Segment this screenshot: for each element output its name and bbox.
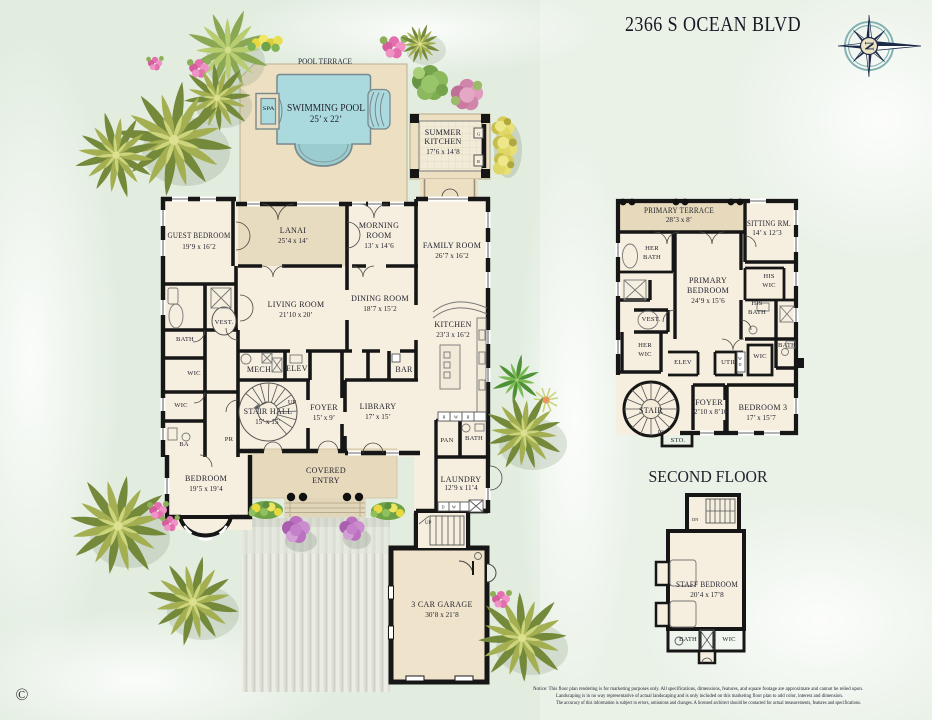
svg-text:30’8 x 21’8: 30’8 x 21’8 bbox=[425, 611, 459, 619]
svg-text:BATH: BATH bbox=[465, 435, 483, 442]
svg-text:BEDROOM: BEDROOM bbox=[185, 474, 227, 483]
svg-text:R: R bbox=[477, 159, 480, 164]
svg-text:B: B bbox=[467, 415, 470, 420]
svg-text:WIC: WIC bbox=[638, 351, 652, 358]
svg-text:13’ x 14’6: 13’ x 14’6 bbox=[364, 242, 394, 250]
svg-text:VEST.: VEST. bbox=[642, 316, 661, 323]
svg-text:DN: DN bbox=[658, 429, 665, 434]
svg-text:ENTRY: ENTRY bbox=[312, 476, 340, 485]
svg-text:D: D bbox=[441, 505, 444, 510]
svg-text:SITTING RM.: SITTING RM. bbox=[747, 219, 791, 228]
svg-text:The accuracy of this informati: The accuracy of this information is subj… bbox=[556, 699, 861, 706]
svg-text:18’7 x 15’2: 18’7 x 15’2 bbox=[363, 305, 397, 313]
svg-text:BAR: BAR bbox=[395, 365, 413, 374]
svg-text:23’3 x 16’2: 23’3 x 16’2 bbox=[436, 331, 470, 339]
svg-text:WIC: WIC bbox=[174, 402, 188, 409]
svg-text:LANAI: LANAI bbox=[280, 226, 306, 235]
svg-text:STO.: STO. bbox=[671, 437, 686, 444]
svg-text:HIS: HIS bbox=[751, 300, 762, 307]
svg-text:ROOM: ROOM bbox=[366, 231, 391, 240]
svg-text:25’4 x 14’: 25’4 x 14’ bbox=[278, 237, 308, 245]
svg-text:FOYER: FOYER bbox=[310, 403, 338, 412]
svg-text:UP: UP bbox=[425, 521, 432, 526]
svg-text:Landscaping is in no way repre: Landscaping is in no way representative … bbox=[556, 692, 844, 699]
svg-text:BATH: BATH bbox=[643, 254, 661, 261]
svg-text:BA: BA bbox=[179, 441, 189, 448]
svg-text:SWIMMING POOL: SWIMMING POOL bbox=[287, 102, 365, 114]
svg-text:MORNING: MORNING bbox=[359, 221, 399, 230]
svg-text:ELEV: ELEV bbox=[286, 364, 308, 373]
svg-text:W: W bbox=[452, 505, 456, 510]
svg-text:26’7 x 16’2: 26’7 x 16’2 bbox=[435, 252, 469, 260]
svg-text:ELEV: ELEV bbox=[674, 359, 692, 366]
svg-text:Notice: This floor plan rende: Notice: This floor plan rendering is for… bbox=[533, 685, 864, 692]
svg-text:MECH: MECH bbox=[247, 365, 271, 374]
svg-text:UTIL: UTIL bbox=[721, 359, 737, 366]
svg-text:BATH: BATH bbox=[176, 336, 194, 343]
svg-text:HER: HER bbox=[645, 245, 659, 252]
svg-text:LIBRARY: LIBRARY bbox=[360, 402, 397, 411]
svg-text:BEDROOM: BEDROOM bbox=[687, 286, 729, 295]
svg-text:B: B bbox=[443, 415, 446, 420]
svg-text:WIC: WIC bbox=[187, 370, 201, 377]
svg-text:N: N bbox=[862, 41, 876, 50]
svg-text:25’ x 22’: 25’ x 22’ bbox=[310, 114, 342, 124]
svg-text:19’5 x 19’4: 19’5 x 19’4 bbox=[189, 485, 223, 493]
svg-text:FOYER: FOYER bbox=[695, 398, 723, 407]
svg-text:COVERED: COVERED bbox=[306, 466, 346, 475]
svg-text:VEST.: VEST. bbox=[215, 319, 234, 326]
svg-text:W: W bbox=[454, 415, 458, 420]
svg-text:21’10 x 20’: 21’10 x 20’ bbox=[279, 311, 313, 319]
svg-text:2366 S OCEAN BLVD: 2366 S OCEAN BLVD bbox=[625, 12, 801, 36]
svg-text:WIC: WIC bbox=[762, 282, 776, 289]
svg-text:BATH: BATH bbox=[778, 342, 796, 349]
svg-text:KITCHEN: KITCHEN bbox=[434, 320, 471, 329]
svg-text:12’9 x 11’4: 12’9 x 11’4 bbox=[444, 484, 478, 492]
svg-text:BATH: BATH bbox=[748, 309, 766, 316]
svg-text:15’ x 9’: 15’ x 9’ bbox=[313, 414, 335, 422]
svg-text:BEDROOM 3: BEDROOM 3 bbox=[739, 403, 788, 412]
svg-text:14’ x 12’3: 14’ x 12’3 bbox=[752, 229, 782, 237]
svg-text:15’ x 15’: 15’ x 15’ bbox=[255, 418, 281, 426]
svg-text:PRIMARY: PRIMARY bbox=[689, 276, 727, 285]
svg-text:D: D bbox=[739, 362, 742, 367]
svg-text:HIS: HIS bbox=[763, 273, 774, 280]
svg-text:12’10 x 8’10: 12’10 x 8’10 bbox=[690, 408, 728, 416]
svg-text:20’4 x 17’8: 20’4 x 17’8 bbox=[690, 591, 724, 599]
svg-text:DINING ROOM: DINING ROOM bbox=[351, 294, 409, 303]
svg-text:STAFF BEDROOM: STAFF BEDROOM bbox=[676, 580, 738, 589]
svg-text:28’3 x 8’: 28’3 x 8’ bbox=[666, 216, 692, 224]
svg-text:W: W bbox=[738, 356, 742, 361]
svg-text:STAIR HALL: STAIR HALL bbox=[244, 407, 293, 416]
svg-text:17’6 x 14’8: 17’6 x 14’8 bbox=[426, 148, 460, 156]
svg-text:DN: DN bbox=[692, 517, 699, 522]
svg-text:LIVING ROOM: LIVING ROOM bbox=[268, 300, 325, 309]
svg-text:17’ x 15’7: 17’ x 15’7 bbox=[746, 414, 776, 422]
svg-text:KITCHEN: KITCHEN bbox=[424, 137, 461, 146]
svg-text:PAN: PAN bbox=[440, 437, 453, 444]
svg-text:LAUNDRY: LAUNDRY bbox=[441, 475, 482, 484]
svg-text:PR: PR bbox=[225, 436, 234, 443]
svg-text:WIC: WIC bbox=[722, 636, 736, 643]
svg-text:BATH: BATH bbox=[679, 636, 697, 643]
svg-text:WIC: WIC bbox=[753, 353, 767, 360]
svg-text:17’ x 15’: 17’ x 15’ bbox=[365, 413, 391, 421]
svg-text:19’9 x 16’2: 19’9 x 16’2 bbox=[182, 243, 216, 251]
svg-text:24’9 x 15’6: 24’9 x 15’6 bbox=[691, 297, 725, 305]
svg-text:SPA: SPA bbox=[263, 106, 275, 112]
svg-text:HER: HER bbox=[638, 342, 652, 349]
svg-text:SUMMER: SUMMER bbox=[425, 128, 462, 137]
svg-text:SECOND FLOOR: SECOND FLOOR bbox=[649, 467, 769, 486]
svg-text:STAIR: STAIR bbox=[639, 406, 663, 415]
svg-text:3 CAR GARAGE: 3 CAR GARAGE bbox=[411, 600, 472, 609]
svg-text:UP: UP bbox=[288, 399, 297, 406]
svg-text:©: © bbox=[16, 685, 29, 704]
svg-text:FAMILY ROOM: FAMILY ROOM bbox=[423, 241, 481, 250]
svg-text:GUEST BEDROOM: GUEST BEDROOM bbox=[168, 231, 231, 240]
svg-text:POOL TERRACE: POOL TERRACE bbox=[298, 57, 352, 66]
svg-text:PRIMARY TERRACE: PRIMARY TERRACE bbox=[644, 206, 714, 215]
